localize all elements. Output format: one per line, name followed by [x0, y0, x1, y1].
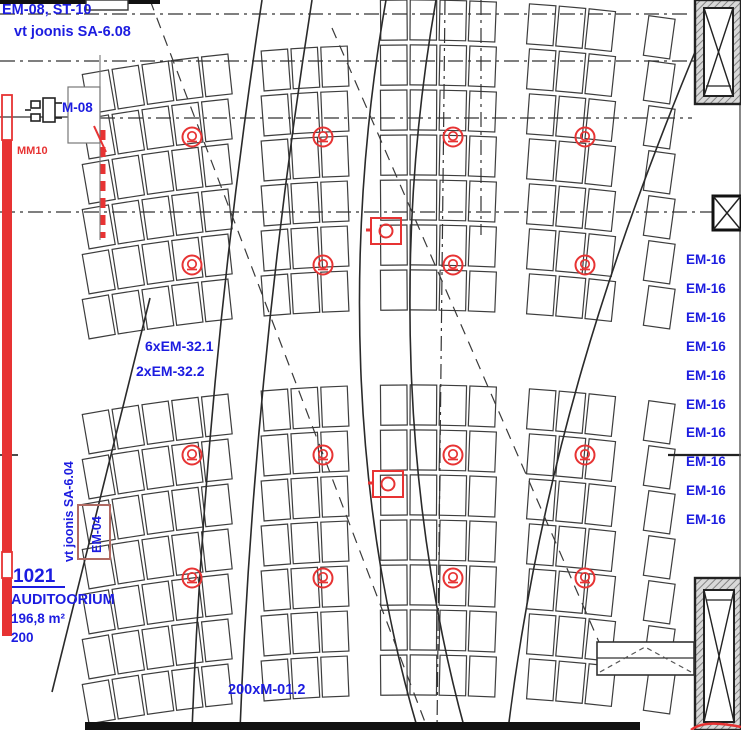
seat: [291, 612, 320, 653]
seat: [261, 49, 290, 91]
seat: [321, 521, 349, 562]
seat: [643, 581, 675, 624]
seat: [261, 139, 290, 181]
em16-label: EM-16: [686, 425, 726, 440]
seat: [527, 274, 556, 316]
speaker-symbol: [183, 256, 202, 275]
seat: [321, 431, 349, 472]
em16-label-column: EM-16EM-16EM-16EM-16EM-16EM-16EM-16EM-16…: [686, 252, 726, 527]
seat: [468, 1, 496, 42]
seat: [556, 616, 586, 658]
seat: [112, 540, 144, 584]
seat: [410, 475, 437, 515]
seat: [112, 245, 144, 289]
seat: [439, 475, 466, 516]
seat: [380, 270, 407, 310]
square-fixture-symbols: [366, 218, 403, 497]
seat: [643, 446, 675, 489]
seat: [556, 96, 586, 138]
seat: [202, 189, 233, 232]
seat: [82, 410, 115, 454]
seat: [410, 430, 437, 470]
label-em08-st10: EM-08, ST-10: [2, 2, 91, 18]
seat: [202, 574, 233, 617]
seat: [410, 520, 437, 560]
seat: [468, 656, 496, 697]
seat: [468, 271, 496, 312]
seat: [172, 487, 203, 530]
em16-label: EM-16: [686, 368, 726, 383]
seat: [291, 227, 320, 268]
seat: [172, 147, 203, 190]
label-2xem322: 2xEM-32.2: [136, 363, 205, 379]
seat: [556, 276, 586, 318]
seat: [527, 389, 556, 431]
seat: [261, 524, 290, 566]
seat: [643, 196, 675, 239]
seat: [291, 522, 320, 563]
seat: [585, 484, 616, 527]
auditorium-floor-plan: EM-08, ST-10 vt joonis SA-6.08 M-08 MM10…: [0, 0, 741, 730]
seat: [112, 65, 144, 109]
label-vt-joonis-604: vt joonis SA-6.04: [62, 461, 76, 562]
seat: [556, 186, 586, 228]
seat: [321, 476, 349, 517]
seat: [142, 106, 174, 149]
seat: [142, 401, 174, 444]
seat: [439, 655, 466, 696]
seat: [468, 386, 496, 427]
seat: [380, 180, 407, 220]
seat: [380, 520, 407, 560]
seat: [321, 46, 349, 87]
seat: [410, 610, 437, 650]
seat: [142, 536, 174, 579]
seat: [410, 270, 437, 310]
seat: [439, 565, 466, 606]
seat: [172, 282, 203, 325]
seat: [112, 450, 144, 494]
seat: [527, 4, 556, 46]
seat: [142, 626, 174, 669]
seat: [439, 520, 466, 561]
seat: [468, 181, 496, 222]
seat: [261, 569, 290, 611]
seat: [585, 9, 616, 52]
room-capacity: 200: [11, 630, 34, 645]
seat: [82, 250, 115, 294]
seat: [261, 479, 290, 521]
seat: [202, 394, 233, 437]
seat: [291, 272, 320, 313]
speaker-symbols: [183, 128, 595, 588]
seat: [142, 491, 174, 534]
label-mm10: MM10: [17, 145, 48, 157]
seating-rows: [82, 0, 675, 724]
seat: [291, 432, 320, 473]
em16-label: EM-16: [686, 512, 726, 527]
seat: [321, 91, 349, 132]
seat: [556, 526, 586, 568]
seat: [468, 226, 496, 267]
em16-label: EM-16: [686, 281, 726, 296]
seat: [643, 671, 675, 714]
seat: [291, 387, 320, 428]
beam-bottom-right: [597, 642, 694, 675]
seat: [643, 401, 675, 444]
seat: [468, 91, 496, 132]
seat: [527, 94, 556, 136]
seat: [142, 151, 174, 194]
seat: [321, 656, 349, 697]
seat: [112, 290, 144, 334]
seat: [410, 655, 437, 695]
wall-bottom: [85, 722, 640, 730]
seat: [202, 144, 233, 187]
label-200xm012: 200xM-01.2: [228, 682, 305, 698]
seat: [585, 279, 616, 322]
floor-plan-page: EM-08, ST-10 vt joonis SA-6.08 M-08 MM10…: [0, 0, 741, 730]
seat: [112, 200, 144, 244]
speaker-symbol: [183, 446, 202, 465]
seat: [380, 385, 407, 425]
em16-label: EM-16: [686, 310, 726, 325]
seat: [82, 680, 115, 724]
seat: [82, 160, 115, 204]
seat: [380, 430, 407, 470]
em16-label: EM-16: [686, 252, 726, 267]
seat: [202, 99, 233, 142]
seat: [439, 385, 466, 426]
seat: [321, 386, 349, 427]
seat: [556, 661, 586, 703]
seat: [527, 139, 556, 181]
seat: [172, 667, 203, 710]
seat: [643, 536, 675, 579]
label-em04: EM-04: [90, 516, 104, 553]
seat: [172, 102, 203, 145]
seat: [112, 630, 144, 674]
seat: [261, 184, 290, 226]
seat: [142, 581, 174, 624]
seat: [527, 614, 556, 656]
seat: [643, 61, 675, 104]
seat: [261, 94, 290, 136]
seat: [380, 45, 407, 85]
seat: [112, 585, 144, 629]
seat: [82, 635, 115, 679]
seat: [643, 241, 675, 284]
seat: [380, 610, 407, 650]
seat: [468, 521, 496, 562]
seat: [585, 189, 616, 232]
room-area: 196,8 m²: [11, 611, 66, 626]
seat: [439, 0, 466, 41]
seat: [585, 529, 616, 572]
seat: [527, 49, 556, 91]
seat: [468, 46, 496, 87]
seat: [291, 47, 320, 88]
em16-label: EM-16: [686, 483, 726, 498]
seat: [142, 286, 174, 329]
label-m08: M-08: [62, 100, 93, 115]
seat: [321, 611, 349, 652]
seat: [439, 270, 466, 311]
seat: [556, 6, 586, 48]
em16-label: EM-16: [686, 397, 726, 412]
seat: [527, 184, 556, 226]
seat: [142, 671, 174, 714]
seat: [261, 614, 290, 656]
seat: [142, 446, 174, 489]
seat: [585, 394, 616, 437]
seat: [112, 405, 144, 449]
seat: [82, 295, 115, 339]
seat: [585, 574, 616, 617]
seat: [321, 271, 349, 312]
room-number: 1021: [13, 566, 56, 587]
speaker-symbol: [444, 569, 463, 588]
seat: [142, 61, 174, 104]
label-6xem321: 6xEM-32.1: [145, 338, 214, 354]
seat: [202, 439, 233, 482]
square-fixture-symbol: [366, 218, 401, 244]
window-x-box: [713, 196, 741, 230]
em16-label: EM-16: [686, 339, 726, 354]
seat: [261, 274, 290, 316]
seat: [410, 135, 437, 175]
seat: [527, 659, 556, 701]
em16-label: EM-16: [686, 454, 726, 469]
seat: [291, 182, 320, 223]
seat: [585, 144, 616, 187]
seat: [172, 192, 203, 235]
seat: [380, 225, 407, 265]
seat: [112, 495, 144, 539]
seat: [172, 622, 203, 665]
seat: [291, 477, 320, 518]
seat: [585, 54, 616, 97]
seat: [527, 229, 556, 271]
seat: [468, 136, 496, 177]
room-name: AUDITOORIUM: [11, 592, 115, 608]
speaker-symbol: [314, 569, 333, 588]
seat: [643, 286, 675, 329]
column-top-right: [695, 0, 741, 104]
seat: [142, 196, 174, 239]
seat: [261, 389, 290, 431]
seat: [439, 45, 466, 86]
seat: [82, 455, 115, 499]
seat: [112, 110, 144, 154]
seat: [202, 619, 233, 662]
speaker-symbol: [444, 446, 463, 465]
seat: [468, 611, 496, 652]
red-wall: [2, 95, 106, 636]
seat: [468, 476, 496, 517]
seat: [172, 57, 203, 100]
seat: [468, 431, 496, 472]
seat: [527, 569, 556, 611]
speaker-symbol: [314, 446, 333, 465]
seat: [643, 491, 675, 534]
seat: [527, 434, 556, 476]
seat: [321, 181, 349, 222]
seat: [112, 675, 144, 719]
column-bottom-right: [695, 578, 741, 730]
seat: [261, 434, 290, 476]
seat: [410, 90, 437, 130]
seat: [202, 529, 233, 572]
seat: [112, 155, 144, 199]
seat: [556, 51, 586, 93]
seat: [468, 566, 496, 607]
motor-symbol: [25, 98, 62, 122]
seat: [142, 241, 174, 284]
seat: [202, 279, 233, 322]
seat: [172, 397, 203, 440]
seat: [439, 610, 466, 651]
seat: [556, 481, 586, 523]
seat: [643, 16, 675, 59]
seat: [380, 90, 407, 130]
seat: [556, 141, 586, 183]
label-vt-joonis-608: vt joonis SA-6.08: [14, 24, 131, 40]
